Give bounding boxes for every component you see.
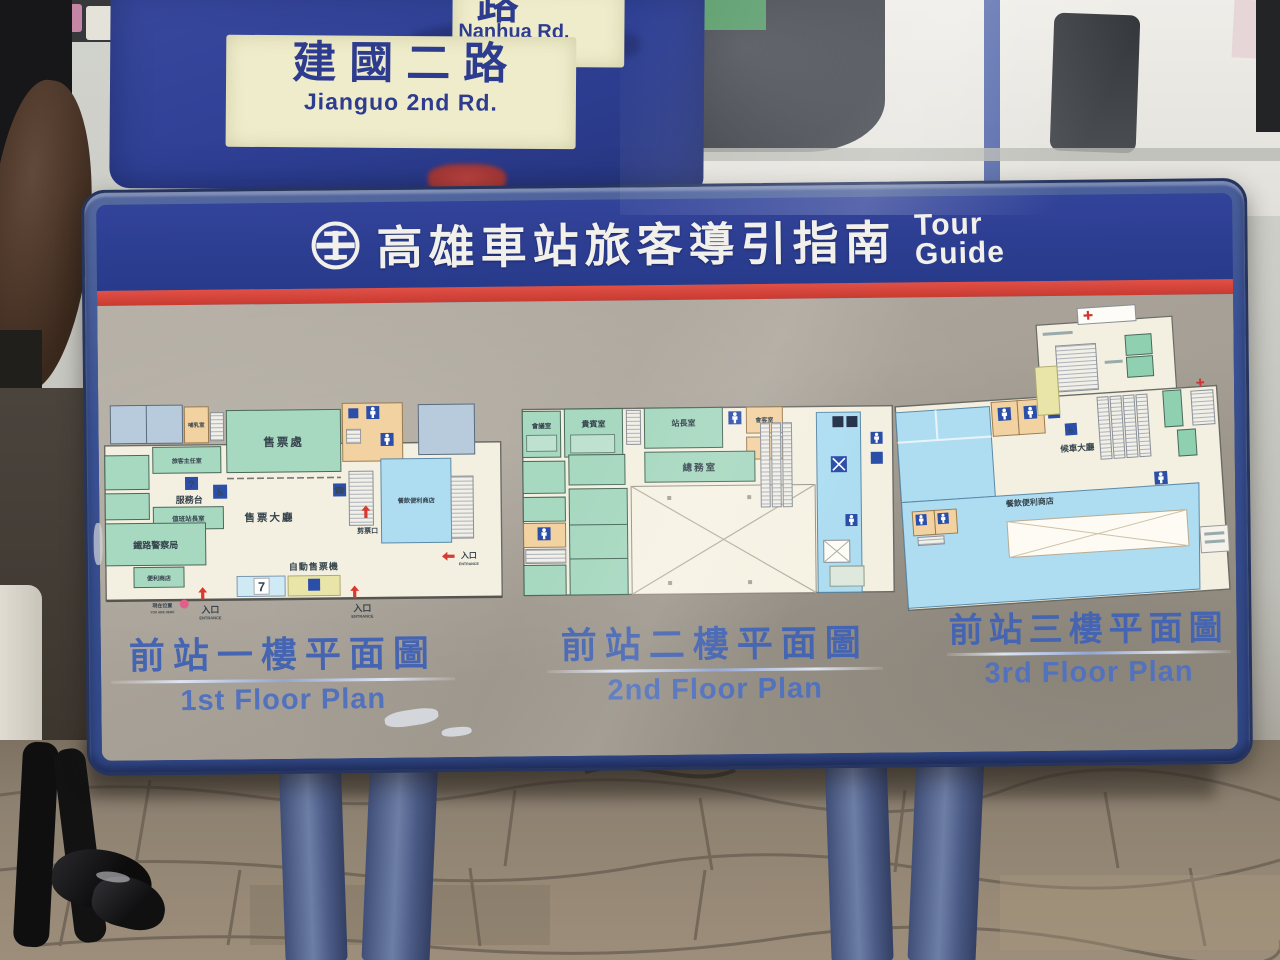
tour-guide-board: 高雄車站旅客導引指南 Tour Guide [81,178,1253,776]
nursing-room: 哺乳室 [184,407,208,443]
service-room [830,566,864,586]
svg-text:哺乳室: 哺乳室 [188,421,205,429]
waiting-hall: 候車大廳 ♿ [1059,422,1095,454]
street-name-cn: 建國二路 [236,35,576,92]
office-room [524,565,566,595]
ticket-gate: 剪票口 [357,505,378,535]
toilet-icon [871,432,883,444]
restrooms: ☎ [991,398,1061,436]
stairs [210,413,223,441]
machine-strip [1035,366,1060,415]
svg-text:ENTRANCE: ENTRANCE [459,562,480,566]
you-are-here-dot [180,600,189,609]
svg-text:便利商店: 便利商店 [147,574,171,582]
glass-glare [620,0,1280,215]
restrooms [342,403,403,462]
wheelchair-icon: ♿ [213,485,227,499]
floor-plan-2f: 會議室 貴賓室 站長室 [516,394,902,616]
phone-icon: ☎ [1049,408,1060,418]
svg-text:剪票口: 剪票口 [357,526,378,535]
svg-text:鐵路警察局: 鐵路警察局 [133,539,178,550]
atrium-void [1007,510,1189,558]
elevator [824,540,850,562]
board-face: 高雄車站旅客導引指南 Tour Guide [96,193,1238,761]
platform-area [110,405,182,444]
office-room [105,493,149,519]
info-icon: ? [185,477,198,491]
floor-plan-3f: 餐飲便利商店 候車大廳 ♿ ☎ [885,295,1238,616]
station-master-room: 站長室 [644,407,722,448]
roof-extension [1035,302,1177,399]
board-leg [278,751,347,960]
svg-text:候車大廳: 候車大廳 [1060,442,1095,454]
green-room [1163,390,1183,427]
atrium-void [631,484,816,594]
svg-text:入口: 入口 [200,605,219,615]
phone-icon: ☎ [333,483,346,496]
board-leg [361,751,438,960]
wheelchair-icon: ♿ [1067,425,1076,436]
svg-text:會客室: 會客室 [755,416,773,424]
ticket-hall-label: 售票大廳 [244,511,294,525]
stairs [626,410,640,444]
escalator-bank [760,423,792,507]
office-column [569,488,628,595]
street-sign-panel-jianguo: 建國二路 Jianguo 2nd Rd. [226,35,577,149]
caption-rule [547,667,883,674]
entrance-side: 入口 ENTRANCE [442,551,480,566]
street-name-sign: 路 Nanhua Rd. 建國二路 Jianguo 2nd Rd. [109,0,704,192]
food-store-label: 餐飲便利商店 [1005,496,1055,509]
svg-text:YOU ARE HERE: YOU ARE HERE [150,610,174,614]
entrance: 入口 ENTRANCE [350,585,374,619]
caption-1f: 前站一樓平面圖 1st Floor Plan [103,624,464,719]
stairs [526,549,566,563]
toilet-icon [1154,471,1168,485]
board-body: 哺乳室 售票處 [97,294,1238,761]
svg-text:餐飲便利商店: 餐飲便利商店 [398,496,435,504]
icon-box [871,452,883,464]
caption-rule [947,650,1231,656]
meeting-room: 會議室 [522,411,560,457]
duty-master-room: 值班站長室 [153,507,223,530]
office-room [569,454,625,485]
svg-text:☎: ☎ [334,485,345,495]
svg-text:入口: 入口 [352,603,371,613]
office-block [418,404,475,455]
svg-text:入口: 入口 [460,551,477,560]
board-leg [824,751,893,960]
toilet-icon [728,411,741,424]
svg-text:值班站長室: 值班站長室 [172,514,205,523]
railway-police-room: 鐵路警察局 [105,523,205,566]
service-desk-label: 服務台 [176,494,203,505]
board-title: 高雄車站旅客導引指南 [376,207,897,278]
toilet-icon [381,433,394,446]
seven-icon: 7 [258,579,265,594]
food-store: 餐飲便利商店 [381,458,452,543]
ticket-office-room: 售票處 [226,409,341,478]
tvm-machines [288,575,340,596]
svg-text:ENTRANCE: ENTRANCE [199,615,222,620]
reception-room: 會客室 ♿ [746,407,783,459]
restroom [523,523,565,547]
svg-text:貴賓室: 貴賓室 [581,419,605,429]
floor-outline [895,385,1230,610]
board-leg [907,751,984,960]
caption-3f: 前站三樓平面圖 3rd Floor Plan [938,600,1238,691]
svg-text:售票處: 售票處 [262,435,304,449]
svg-text:站長室: 站長室 [671,418,695,428]
frame-scuff [93,523,102,565]
svg-text:旅客主任室: 旅客主任室 [171,457,202,465]
escalator-bank [1097,394,1151,459]
general-affairs-room: 總務室 [645,451,755,482]
convenience-store: 便利商店 [134,567,184,588]
you-are-here: 現在位置 YOU ARE HERE [150,600,189,615]
office-room [523,461,565,493]
tvm-label: 自動售票機 [289,560,339,572]
concourse-strip [816,412,862,592]
stairs [1191,390,1215,425]
taiwan-railways-logo-icon [308,218,363,273]
chief-office: 旅客主任室 [153,447,221,474]
caption-rule [111,677,455,684]
tour-guide-label: Tour Guide [914,209,1006,268]
seven-eleven: 7 [237,576,285,597]
svg-text:♿: ♿ [216,488,225,499]
svg-text:會議室: 會議室 [532,421,552,430]
vip-room: 貴賓室 [564,408,622,457]
exit-box [1200,525,1230,553]
elevator-icon [831,456,847,472]
photo-scene: 路 Nanhua Rd. 建國二路 Jianguo 2nd Rd. [0,0,1280,960]
first-aid-icon [1083,311,1093,321]
concourse-blue [896,393,1206,608]
svg-text:ENTRANCE: ENTRANCE [351,614,374,619]
street-name-en: Jianguo 2nd Rd. [226,88,576,117]
stairs [451,476,474,538]
svg-text:總務室: 總務室 [683,461,718,473]
office-room [105,455,149,489]
svg-text:?: ? [188,479,194,490]
entrance: 入口 ENTRANCE [198,587,222,621]
toilet-icon [366,406,379,419]
caption-2f: 前站二樓平面圖 2nd Floor Plan [538,614,891,709]
floor-plan-1f: 哺乳室 售票處 [96,392,514,622]
svg-text:現在位置: 現在位置 [152,602,172,609]
escalator [349,471,374,525]
restrooms-lower [912,509,958,546]
first-aid-icon [1196,378,1205,387]
green-room [1177,429,1197,456]
office-room [523,497,565,521]
wheelchair-icon: ♿ [761,444,769,454]
